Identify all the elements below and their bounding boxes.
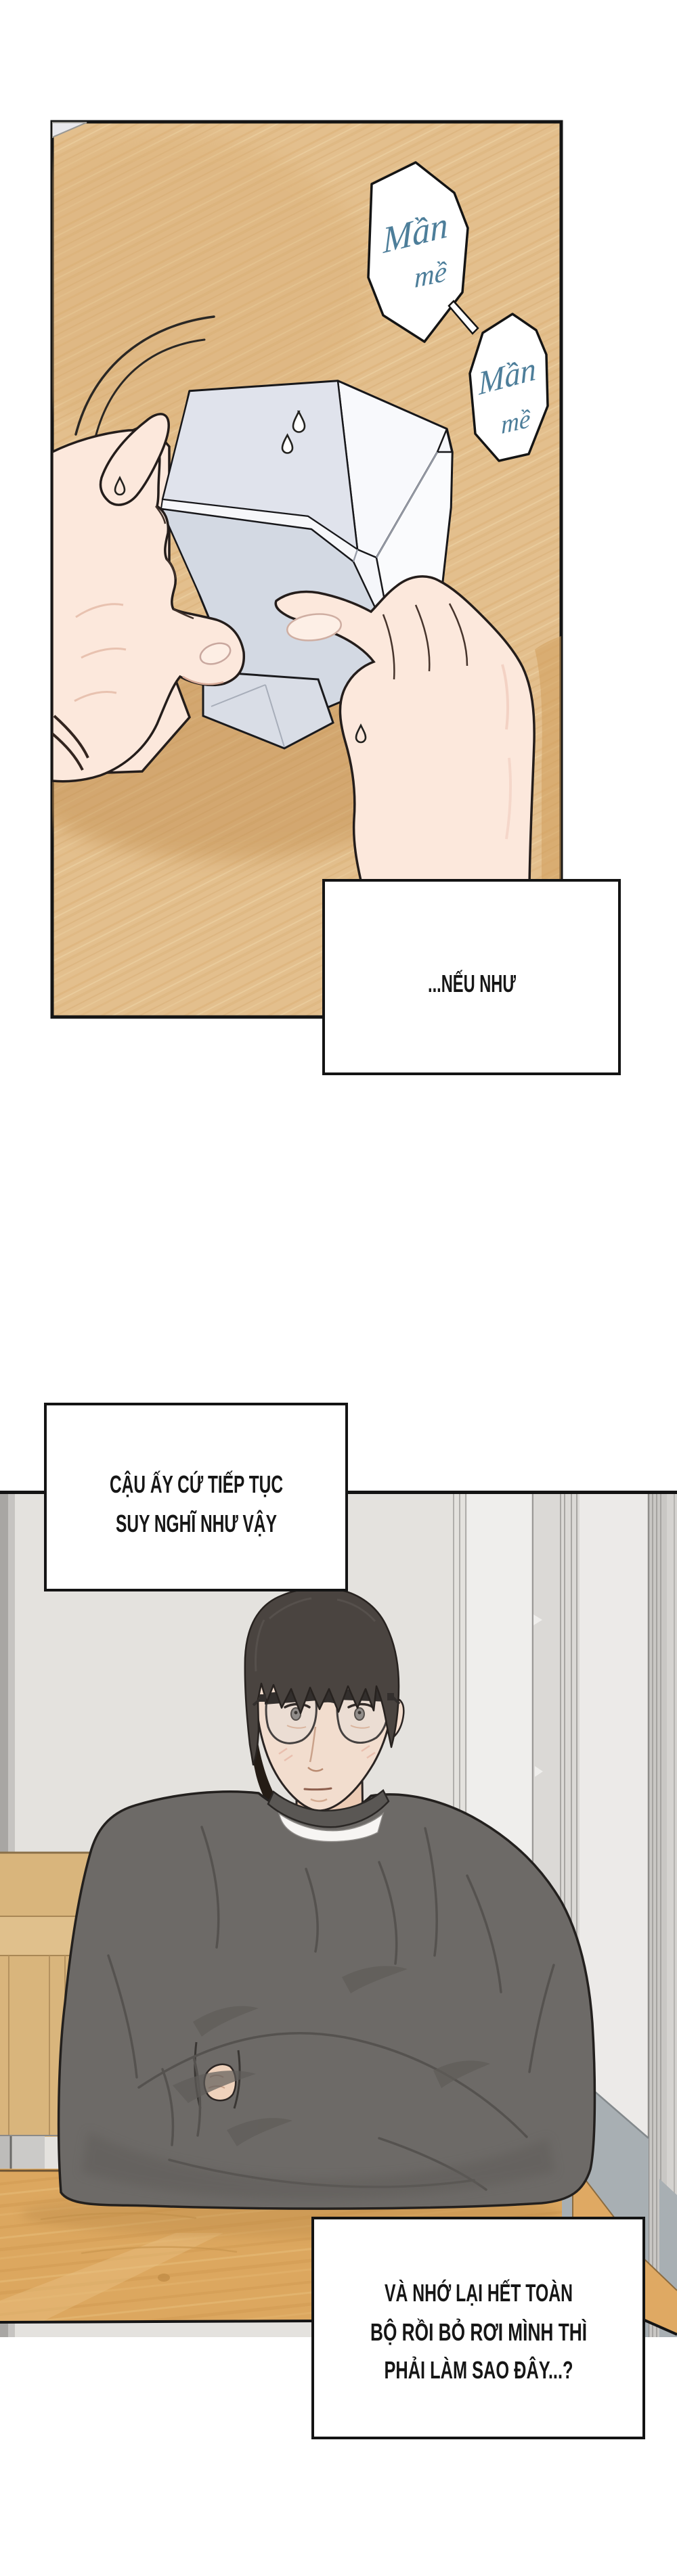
svg-text:SUY NGHĨ NHƯ VẬY: SUY NGHĨ NHƯ VẬY: [116, 1509, 277, 1537]
svg-text:PHẢI LÀM SAO ĐÂY...?: PHẢI LÀM SAO ĐÂY...?: [385, 2355, 573, 2384]
svg-text:CẬU ẤY CỨ TIẾP TỤC: CẬU ẤY CỨ TIẾP TỤC: [110, 1470, 283, 1498]
svg-text:VÀ NHỚ LẠI HẾT TOÀN: VÀ NHỚ LẠI HẾT TOÀN: [385, 2278, 573, 2307]
svg-text:BỘ RỒI BỎ RƠI MÌNH THÌ: BỘ RỒI BỎ RƠI MÌNH THÌ: [370, 2318, 587, 2346]
svg-text:...NẾU NHƯ: ...NẾU NHƯ: [428, 970, 516, 997]
